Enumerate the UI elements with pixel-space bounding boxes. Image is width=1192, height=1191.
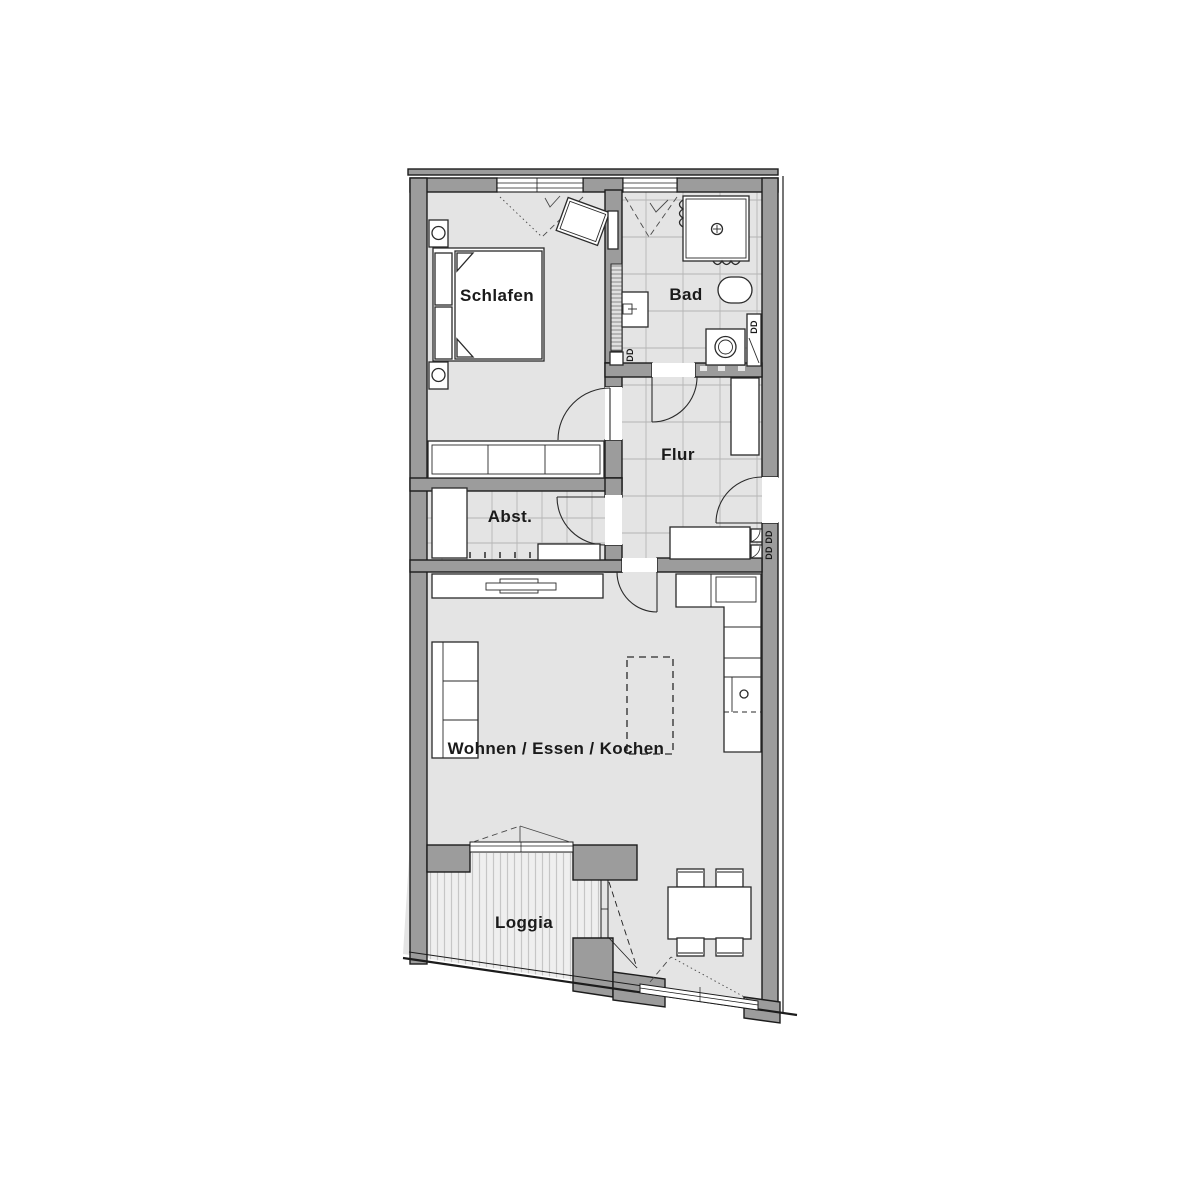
sink-tap-hole	[740, 690, 748, 698]
top-facade-strip	[408, 169, 778, 175]
duct-label-entry-shaft: DD DD	[764, 530, 774, 560]
loggia-pillar-right	[573, 845, 637, 880]
window-schlafen	[497, 178, 583, 192]
dining-chair	[677, 869, 704, 887]
dining-chair	[716, 938, 743, 956]
pillow-bottom	[435, 307, 452, 359]
wall-schlafen-flur-lower	[605, 440, 622, 478]
tv-screen	[486, 583, 556, 590]
dining-chair	[677, 938, 704, 956]
nightstand-top	[429, 220, 448, 247]
room-label-bad: Bad	[669, 285, 702, 305]
duct-label-bad-corner: DD	[625, 348, 635, 361]
tv-lowboard	[432, 574, 603, 598]
dining-table	[668, 887, 751, 939]
hall-sideboard	[670, 527, 750, 559]
pillow-top	[435, 253, 452, 305]
floorplan-drawing	[0, 0, 1192, 1191]
washbasin	[622, 292, 648, 327]
loggia-sliding-door	[470, 842, 573, 852]
opening-bad-door	[652, 363, 695, 377]
room-label-loggia: Loggia	[495, 913, 553, 933]
storage-cabinet-low	[538, 544, 600, 560]
shower	[680, 196, 750, 265]
wall-abst-wohnen	[410, 560, 622, 572]
wall-vent-ticks	[700, 366, 745, 371]
room-label-wohnen-essen-kochen: Wohnen / Essen / Kochen	[448, 739, 665, 759]
opening-entry-door	[762, 477, 778, 523]
wall-duct-panel	[608, 211, 618, 249]
hall-closet	[731, 378, 759, 455]
wall-flur-wohnen	[657, 558, 762, 572]
floorplan-canvas: Schlafen Bad Flur Abst. Wohnen / Essen /…	[0, 0, 1192, 1191]
dining-chair	[716, 869, 743, 887]
room-label-abst: Abst.	[488, 507, 533, 527]
storage-cabinet-tall	[432, 488, 467, 558]
toilet	[718, 277, 752, 303]
wardrobe	[428, 441, 604, 478]
room-label-flur: Flur	[661, 445, 695, 465]
duct-box-bad-corner	[610, 352, 623, 365]
nightstand-bottom	[429, 362, 448, 389]
right-exterior-wall-upper	[762, 178, 778, 477]
opening-wohnen-door	[622, 558, 657, 572]
opening-schlafen-door	[605, 387, 622, 440]
installation-prewall	[611, 264, 622, 351]
loggia-pillar-left	[427, 845, 470, 872]
window-bad	[623, 178, 677, 192]
right-exterior-wall-lower	[762, 523, 778, 1003]
room-label-schlafen: Schlafen	[460, 286, 534, 306]
duct-label-bad-shaft: DD	[749, 320, 759, 333]
opening-abst-door	[605, 495, 622, 545]
wall-abst-flur-upper	[605, 478, 622, 497]
washing-machine	[706, 329, 745, 365]
